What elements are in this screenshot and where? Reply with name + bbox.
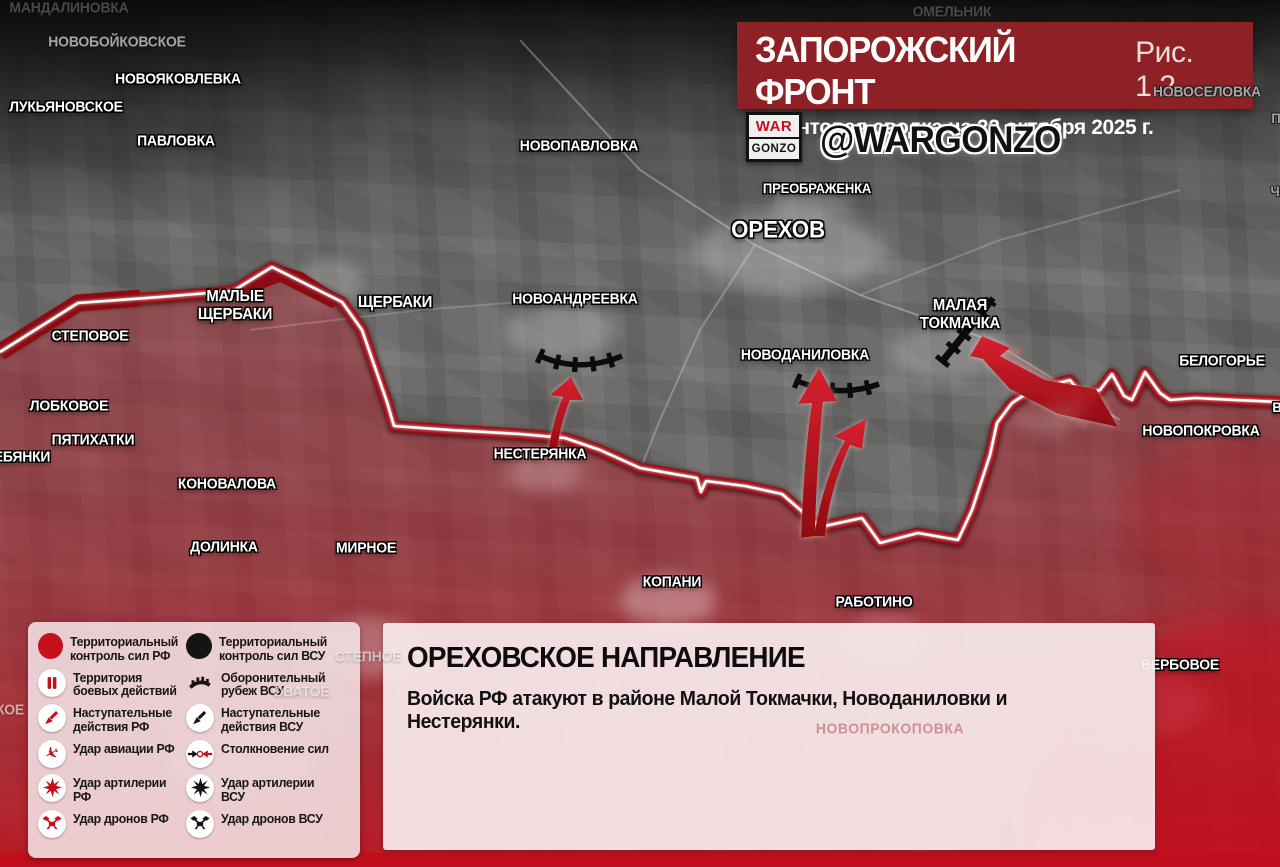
legend-item: Столкновение сил: [186, 740, 352, 768]
vsu-artillery-icon: [186, 774, 214, 802]
vsu-drone-icon: [186, 810, 214, 838]
battle-zone-icon: [38, 669, 66, 697]
vsu-control-icon: [186, 633, 212, 659]
map-title: ЗАПОРОЖСКИЙ ФРОНТ: [755, 29, 1120, 113]
legend-column-rf: Территориальный контроль сил РФТерритори…: [38, 633, 182, 850]
wargonzo-handle: @WARGONZO: [820, 119, 1061, 161]
direction-info-box: ОРЕХОВСКОЕ НАПРАВЛЕНИЕ Войска РФ атакуют…: [383, 623, 1155, 850]
vsu-offensive-icon: [186, 704, 214, 732]
legend-item-label: Удар артилерии РФ: [73, 774, 166, 804]
legend-item: ✈Удар авиации РФ: [38, 740, 182, 768]
logo-gonzo-text: GONZO: [749, 139, 799, 159]
legend-item: Удар артилерии ВСУ: [186, 774, 352, 804]
legend-item-label: Удар авиации РФ: [73, 740, 174, 756]
rf-attack-arrow-novodanilovka-left: [798, 368, 837, 538]
direction-text: Войска РФ атакуют в районе Малой Токмачк…: [407, 688, 1109, 734]
legend-item: Территория боевых действий: [38, 669, 182, 699]
map-legend: Территориальный контроль сил РФТерритори…: [28, 622, 360, 858]
front-map-infographic: МАНДАЛИНОВКАНОВОБОЙКОВСКОЕНОВОЯКОВЛЕВКАЛ…: [0, 0, 1280, 867]
legend-item: Удар дронов ВСУ: [186, 810, 352, 838]
vsu-defense-line-icon: [186, 669, 214, 697]
banner-title-row: ЗАПОРОЖСКИЙ ФРОНТ Рис. 1.2: [755, 29, 1235, 113]
legend-column-vsu: Территориальный контроль сил ВСУОборонит…: [186, 633, 352, 850]
legend-item: Наступательные действия РФ: [38, 704, 182, 734]
rf-control-icon: [38, 633, 63, 659]
legend-item: Удар артилерии РФ: [38, 774, 182, 804]
legend-item-label: Территориальный контроль сил РФ: [70, 633, 178, 663]
title-banner: ЗАПОРОЖСКИЙ ФРОНТ Рис. 1.2 Фронтовая сво…: [737, 22, 1253, 109]
legend-item-label: Удар дронов ВСУ: [221, 810, 323, 826]
legend-item-label: Наступательные действия ВСУ: [221, 704, 320, 734]
legend-item: Удар дронов РФ: [38, 810, 182, 838]
legend-item-label: Удар артилерии ВСУ: [221, 774, 314, 804]
legend-item: Оборонительный рубеж ВСУ: [186, 669, 352, 699]
logo-war-text: WAR: [749, 115, 799, 139]
legend-item-label: Столкновение сил: [221, 740, 329, 756]
rf-offensive-icon: [38, 704, 66, 732]
legend-item: Территориальный контроль сил РФ: [38, 633, 182, 663]
wargonzo-logo: WAR GONZO: [746, 112, 802, 162]
legend-item-label: Территория боевых действий: [73, 669, 177, 699]
rf-drone-icon: [38, 810, 66, 838]
legend-item-label: Территориальный контроль сил ВСУ: [219, 633, 327, 663]
rf-artillery-icon: [38, 774, 66, 802]
legend-item-label: Оборонительный рубеж ВСУ: [221, 669, 325, 699]
legend-item-label: Наступательные действия РФ: [73, 704, 172, 734]
rf-aviation-icon: ✈: [38, 740, 66, 768]
legend-item-label: Удар дронов РФ: [73, 810, 169, 826]
legend-item: Территориальный контроль сил ВСУ: [186, 633, 352, 663]
clash-icon: [186, 740, 214, 768]
direction-title: ОРЕХОВСКОЕ НАПРАВЛЕНИЕ: [407, 642, 1102, 675]
figure-number: Рис. 1.2: [1135, 36, 1235, 104]
legend-item: Наступательные действия ВСУ: [186, 704, 352, 734]
